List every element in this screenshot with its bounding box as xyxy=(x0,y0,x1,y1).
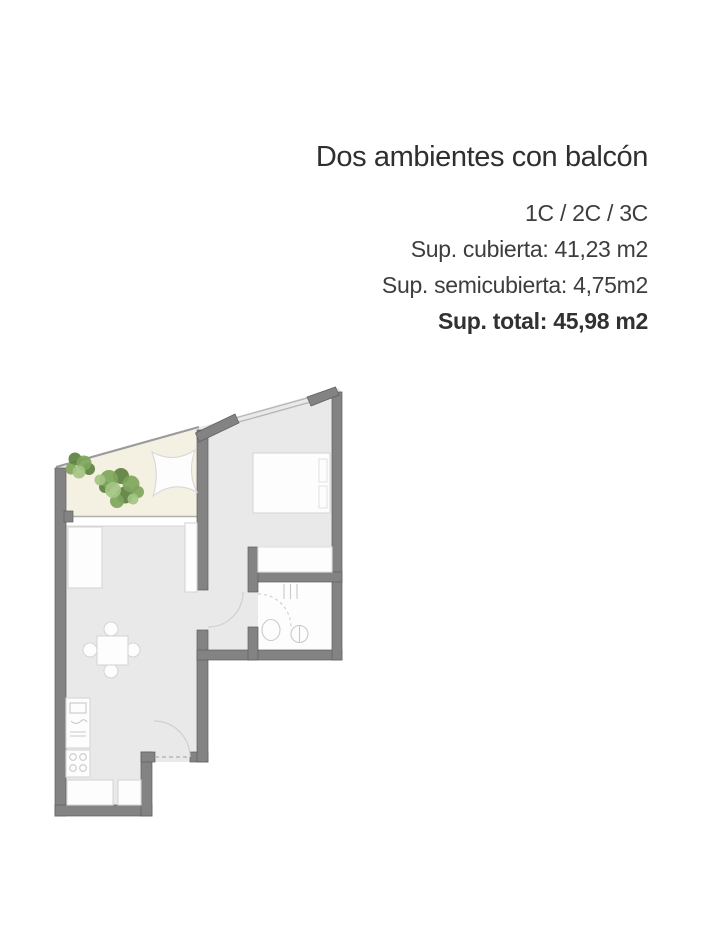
spec-total-area: Sup. total: 45,98 m2 xyxy=(316,303,648,339)
page-title: Dos ambientes con balcón xyxy=(316,141,648,173)
toilet xyxy=(262,620,280,641)
wall-bottom xyxy=(55,805,152,816)
wall-balcony-stub xyxy=(64,511,73,522)
wall-right xyxy=(332,392,342,660)
balcony-door-glass xyxy=(66,517,197,526)
wall-bathroom-left-upper xyxy=(248,547,258,592)
spec-semicovered-area: Sup. semicubierta: 4,75m2 xyxy=(316,267,648,303)
cabinet xyxy=(185,523,197,592)
dining-chair xyxy=(104,622,118,636)
unit-info-block: Dos ambientes con balcón 1C / 2C / 3C Su… xyxy=(316,141,648,339)
kitchen-counter-left xyxy=(67,780,113,805)
bed-pillow-top xyxy=(319,459,327,482)
wall-bathroom-bottom xyxy=(197,650,342,660)
spec-covered-area: Sup. cubierta: 41,23 m2 xyxy=(316,231,648,267)
unit-types: 1C / 2C / 3C xyxy=(316,195,648,231)
bed-pillow-bottom xyxy=(319,486,327,508)
dining-chair xyxy=(104,664,118,678)
wardrobe xyxy=(258,547,332,572)
wall-bathroom-top xyxy=(253,572,342,582)
wall-entry-left xyxy=(141,752,155,762)
kitchen-counter-right xyxy=(118,780,141,805)
unit-specs: 1C / 2C / 3C Sup. cubierta: 41,23 m2 Sup… xyxy=(316,195,648,339)
wall-bathroom-left-lower xyxy=(248,627,258,660)
listing-page: Dos ambientes con balcón 1C / 2C / 3C Su… xyxy=(0,0,704,950)
sofa xyxy=(68,527,102,588)
floorplan-drawing xyxy=(40,380,360,840)
dining-chair xyxy=(83,643,97,657)
kitchen-stove xyxy=(66,750,90,777)
dining-table xyxy=(97,636,128,665)
wall-living-bedroom-upper xyxy=(197,430,208,590)
